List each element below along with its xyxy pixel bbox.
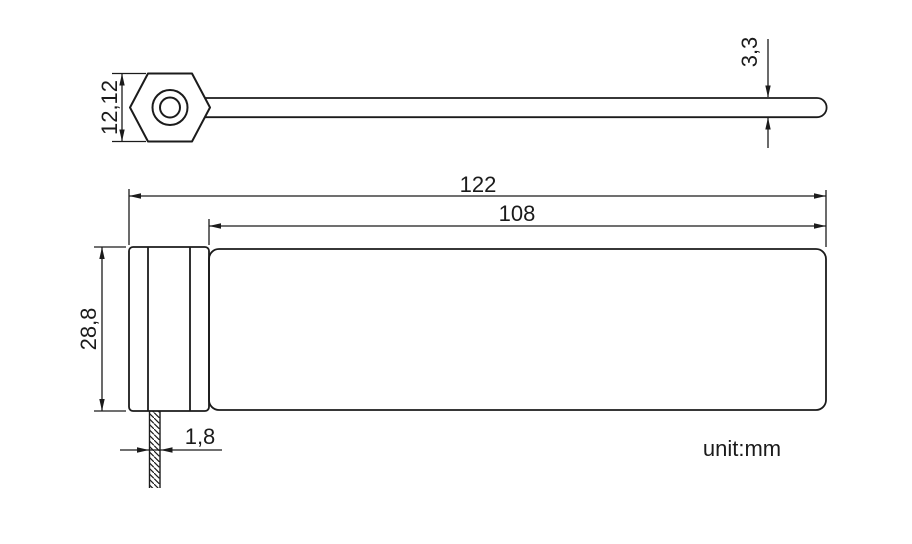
- arrowhead-up: [765, 118, 770, 130]
- dim-label-strap-thickness: 3,3: [737, 37, 762, 68]
- arrowhead-left: [129, 193, 141, 198]
- seal-label-plate: [209, 249, 826, 410]
- drawing-canvas: 12,12 3,3 122: [0, 0, 912, 544]
- dim-label-total-length: 122: [460, 172, 497, 197]
- dim-total-length: 122: [129, 172, 826, 247]
- seal-hole-outer-circle: [153, 90, 188, 125]
- unit-label: unit:mm: [703, 436, 781, 461]
- arrowhead-left: [161, 447, 173, 452]
- dim-strap-length: 108: [209, 201, 826, 245]
- dim-tail-width: 1,8: [120, 424, 222, 453]
- dim-label-head-height: 12,12: [97, 80, 122, 135]
- dim-label-body-height: 28,8: [76, 308, 101, 351]
- seal-hole-inner-circle: [160, 98, 180, 118]
- arrowhead-down: [765, 86, 770, 98]
- arrowhead-up: [99, 247, 104, 259]
- side-view: [130, 74, 827, 142]
- seal-head-block: [129, 247, 209, 411]
- dim-label-tail-width: 1,8: [185, 424, 216, 449]
- arrowhead-left: [209, 223, 221, 228]
- arrowhead-right: [814, 223, 826, 228]
- dim-head-height: 12,12: [97, 74, 146, 142]
- dim-strap-thickness: 3,3: [737, 37, 771, 148]
- seal-strap: [205, 98, 827, 117]
- seal-drawing-svg: 12,12 3,3 122: [0, 0, 912, 544]
- seal-head-hexagon: [130, 74, 210, 142]
- arrowhead-right: [814, 193, 826, 198]
- arrowhead-right: [137, 447, 149, 452]
- arrowhead-down: [99, 399, 104, 411]
- dim-label-strap-length: 108: [499, 201, 536, 226]
- dim-body-height: 28,8: [76, 247, 126, 411]
